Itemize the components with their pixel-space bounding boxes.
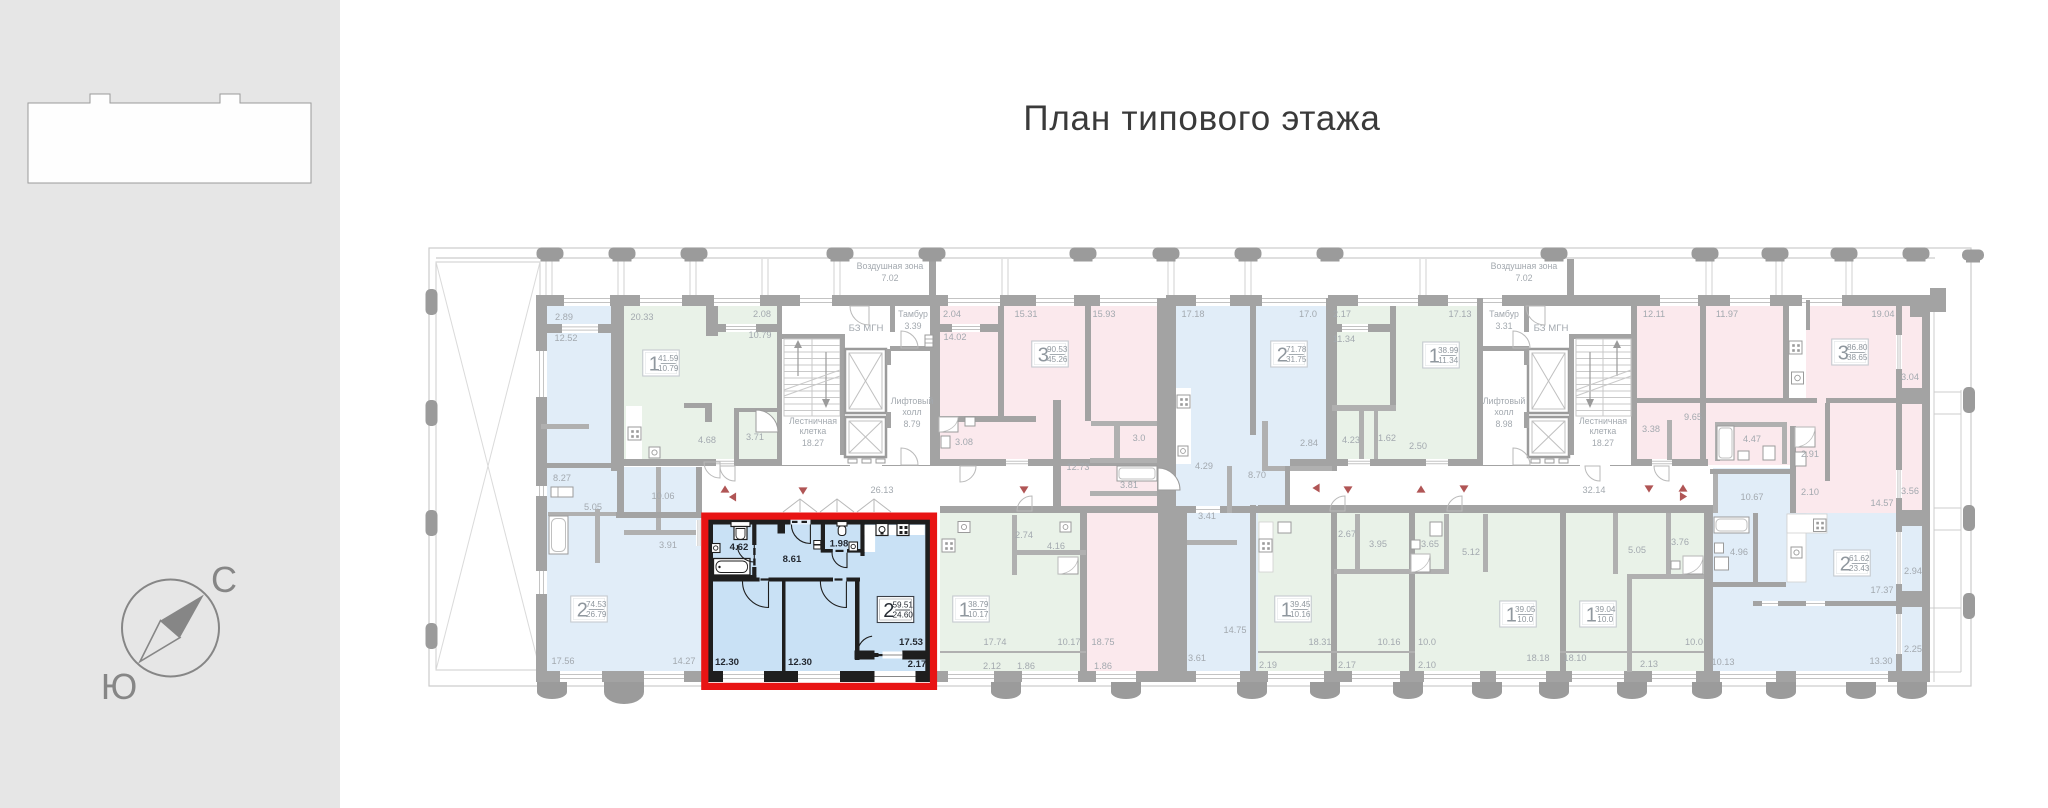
svg-text:12.11: 12.11 bbox=[1643, 309, 1665, 319]
svg-text:1.98: 1.98 bbox=[830, 539, 849, 550]
svg-text:3.81: 3.81 bbox=[1120, 480, 1138, 490]
svg-text:10.0: 10.0 bbox=[1597, 615, 1613, 624]
svg-text:38.99: 38.99 bbox=[1438, 346, 1459, 355]
svg-text:10.67: 10.67 bbox=[1741, 492, 1764, 502]
svg-text:3.65: 3.65 bbox=[1421, 539, 1439, 549]
svg-text:11.34: 11.34 bbox=[1438, 356, 1458, 365]
svg-text:11.34: 11.34 bbox=[1333, 334, 1355, 344]
svg-text:5.12: 5.12 bbox=[1462, 547, 1480, 557]
svg-text:План типового этажа: План типового этажа bbox=[1023, 99, 1380, 138]
svg-text:26.79: 26.79 bbox=[586, 610, 607, 619]
svg-text:10.79: 10.79 bbox=[658, 364, 679, 373]
svg-text:3.41: 3.41 bbox=[1198, 511, 1216, 521]
svg-text:1.62: 1.62 bbox=[1378, 433, 1396, 443]
svg-text:2.25: 2.25 bbox=[1904, 644, 1922, 654]
svg-text:3.04: 3.04 bbox=[1901, 372, 1919, 382]
svg-text:14.75: 14.75 bbox=[1224, 625, 1247, 635]
svg-text:8.61: 8.61 bbox=[783, 554, 802, 565]
svg-text:2.19: 2.19 bbox=[1259, 660, 1277, 670]
svg-text:2.17: 2.17 bbox=[1338, 660, 1356, 670]
svg-text:2.74: 2.74 bbox=[1015, 530, 1033, 540]
svg-text:2.94: 2.94 bbox=[1904, 566, 1922, 576]
svg-text:18.31: 18.31 bbox=[1309, 637, 1332, 647]
svg-text:10.16: 10.16 bbox=[1378, 637, 1401, 647]
svg-text:Воздушная зона: Воздушная зона bbox=[857, 261, 924, 271]
svg-text:Тамбур: Тамбур bbox=[1489, 309, 1519, 319]
svg-text:18.18: 18.18 bbox=[1527, 653, 1550, 663]
svg-text:18.27: 18.27 bbox=[802, 438, 824, 448]
svg-text:10.0: 10.0 bbox=[1418, 637, 1436, 647]
svg-text:8.98: 8.98 bbox=[1495, 419, 1512, 429]
svg-text:17.53: 17.53 bbox=[899, 637, 923, 648]
svg-text:10.0: 10.0 bbox=[1685, 637, 1703, 647]
svg-text:холл: холл bbox=[902, 407, 921, 417]
svg-text:4.96: 4.96 bbox=[1730, 547, 1748, 557]
svg-text:2.84: 2.84 bbox=[1300, 438, 1318, 448]
svg-text:1.86: 1.86 bbox=[1094, 661, 1112, 671]
svg-text:10.13: 10.13 bbox=[1712, 657, 1735, 667]
svg-text:7.02: 7.02 bbox=[881, 273, 898, 283]
svg-text:Тамбур: Тамбур bbox=[898, 309, 928, 319]
svg-text:15.31: 15.31 bbox=[1015, 309, 1038, 319]
svg-text:5.05: 5.05 bbox=[584, 502, 602, 512]
svg-text:4.68: 4.68 bbox=[698, 435, 716, 445]
svg-text:клетка: клетка bbox=[800, 426, 827, 436]
svg-text:2.89: 2.89 bbox=[555, 312, 573, 322]
svg-text:18.75: 18.75 bbox=[1092, 637, 1115, 647]
svg-text:18.10: 18.10 bbox=[1564, 653, 1587, 663]
svg-text:39.04: 39.04 bbox=[1595, 605, 1616, 614]
svg-text:С: С bbox=[211, 559, 237, 600]
svg-text:2.17: 2.17 bbox=[908, 659, 927, 670]
svg-text:17.56: 17.56 bbox=[552, 656, 575, 666]
svg-text:17.0: 17.0 bbox=[1299, 309, 1317, 319]
svg-text:3.0: 3.0 bbox=[1133, 433, 1146, 443]
svg-text:38.65: 38.65 bbox=[1847, 353, 1868, 362]
svg-text:3.39: 3.39 bbox=[904, 321, 921, 331]
svg-text:10.17: 10.17 bbox=[968, 610, 989, 619]
svg-text:23.43: 23.43 bbox=[1849, 564, 1870, 573]
svg-text:39.45: 39.45 bbox=[1290, 600, 1311, 609]
svg-text:2.13: 2.13 bbox=[1640, 659, 1658, 669]
svg-text:3.08: 3.08 bbox=[955, 437, 973, 447]
svg-text:8.27: 8.27 bbox=[553, 473, 571, 483]
svg-text:10.06: 10.06 bbox=[652, 491, 675, 501]
svg-text:14.02: 14.02 bbox=[944, 332, 967, 342]
svg-text:2.10: 2.10 bbox=[1418, 660, 1436, 670]
svg-text:8.79: 8.79 bbox=[903, 419, 920, 429]
svg-text:2.67: 2.67 bbox=[1338, 529, 1356, 539]
svg-text:3.31: 3.31 bbox=[1495, 321, 1512, 331]
svg-text:4.62: 4.62 bbox=[730, 542, 749, 553]
svg-text:3.61: 3.61 bbox=[1188, 653, 1206, 663]
svg-text:3.56: 3.56 bbox=[1901, 486, 1919, 496]
svg-text:2.04: 2.04 bbox=[943, 309, 961, 319]
svg-text:12.30: 12.30 bbox=[788, 657, 812, 668]
svg-text:Лестничная: Лестничная bbox=[1579, 416, 1627, 426]
svg-text:2.17: 2.17 bbox=[1333, 309, 1351, 319]
svg-text:24.60: 24.60 bbox=[893, 611, 914, 620]
svg-text:2.10: 2.10 bbox=[1801, 487, 1819, 497]
svg-text:12.52: 12.52 bbox=[555, 333, 578, 343]
svg-text:3.76: 3.76 bbox=[1671, 537, 1689, 547]
svg-text:41.59: 41.59 bbox=[658, 354, 679, 363]
svg-text:59.51: 59.51 bbox=[893, 601, 914, 610]
svg-text:Ю: Ю bbox=[101, 666, 137, 707]
svg-text:холл: холл bbox=[1494, 407, 1513, 417]
svg-text:2.50: 2.50 bbox=[1409, 441, 1427, 451]
svg-text:4.47: 4.47 bbox=[1743, 434, 1761, 444]
svg-text:12.30: 12.30 bbox=[715, 657, 739, 668]
svg-text:45.26: 45.26 bbox=[1047, 355, 1068, 364]
svg-text:10.0: 10.0 bbox=[1517, 615, 1533, 624]
svg-text:86.80: 86.80 bbox=[1847, 343, 1868, 352]
svg-text:31.75: 31.75 bbox=[1286, 355, 1307, 364]
svg-text:2.12: 2.12 bbox=[983, 661, 1001, 671]
svg-text:13.30: 13.30 bbox=[1870, 656, 1893, 666]
svg-text:7.02: 7.02 bbox=[1515, 273, 1532, 283]
svg-text:14.57: 14.57 bbox=[1871, 498, 1894, 508]
svg-text:90.53: 90.53 bbox=[1047, 345, 1068, 354]
svg-text:71.78: 71.78 bbox=[1286, 345, 1307, 354]
svg-text:32.14: 32.14 bbox=[1583, 485, 1606, 495]
svg-text:4.29: 4.29 bbox=[1195, 461, 1213, 471]
svg-text:17.13: 17.13 bbox=[1449, 309, 1472, 319]
svg-text:3.71: 3.71 bbox=[746, 432, 764, 442]
svg-text:клетка: клетка bbox=[1590, 426, 1617, 436]
svg-text:Лифтовый: Лифтовый bbox=[891, 396, 934, 406]
svg-text:Лестничная: Лестничная bbox=[789, 416, 837, 426]
svg-text:38.79: 38.79 bbox=[968, 600, 989, 609]
svg-text:14.27: 14.27 bbox=[673, 656, 696, 666]
svg-text:Лифтовый: Лифтовый bbox=[1483, 396, 1526, 406]
svg-text:10.79: 10.79 bbox=[749, 330, 772, 340]
svg-text:15.93: 15.93 bbox=[1093, 309, 1116, 319]
svg-text:9.65: 9.65 bbox=[1684, 412, 1702, 422]
svg-text:5.05: 5.05 bbox=[1628, 545, 1646, 555]
svg-text:26.13: 26.13 bbox=[871, 485, 894, 495]
svg-text:3.91: 3.91 bbox=[659, 540, 677, 550]
svg-text:12.73: 12.73 bbox=[1067, 462, 1090, 472]
svg-text:17.74: 17.74 bbox=[984, 637, 1007, 647]
svg-text:17.37: 17.37 bbox=[1871, 585, 1894, 595]
svg-text:4.23: 4.23 bbox=[1342, 435, 1360, 445]
svg-text:39.05: 39.05 bbox=[1515, 605, 1536, 614]
svg-text:4.16: 4.16 bbox=[1047, 541, 1065, 551]
svg-text:18.27: 18.27 bbox=[1592, 438, 1614, 448]
svg-text:61.62: 61.62 bbox=[1849, 554, 1870, 563]
svg-text:3.38: 3.38 bbox=[1642, 424, 1660, 434]
svg-text:10.17: 10.17 bbox=[1058, 637, 1081, 647]
svg-text:3.95: 3.95 bbox=[1369, 539, 1387, 549]
svg-text:1.86: 1.86 bbox=[1017, 661, 1035, 671]
svg-text:БЗ МГН: БЗ МГН bbox=[1534, 323, 1569, 334]
svg-text:2.91: 2.91 bbox=[1801, 449, 1819, 459]
svg-text:19.04: 19.04 bbox=[1872, 309, 1895, 319]
svg-text:11.97: 11.97 bbox=[1716, 309, 1738, 319]
svg-text:17.18: 17.18 bbox=[1182, 309, 1205, 319]
svg-text:10.16: 10.16 bbox=[1290, 610, 1311, 619]
svg-text:8.70: 8.70 bbox=[1248, 470, 1266, 480]
svg-text:Воздушная зона: Воздушная зона bbox=[1491, 261, 1558, 271]
svg-text:74.53: 74.53 bbox=[586, 600, 607, 609]
svg-text:20.33: 20.33 bbox=[631, 312, 654, 322]
svg-text:2.08: 2.08 bbox=[753, 309, 771, 319]
